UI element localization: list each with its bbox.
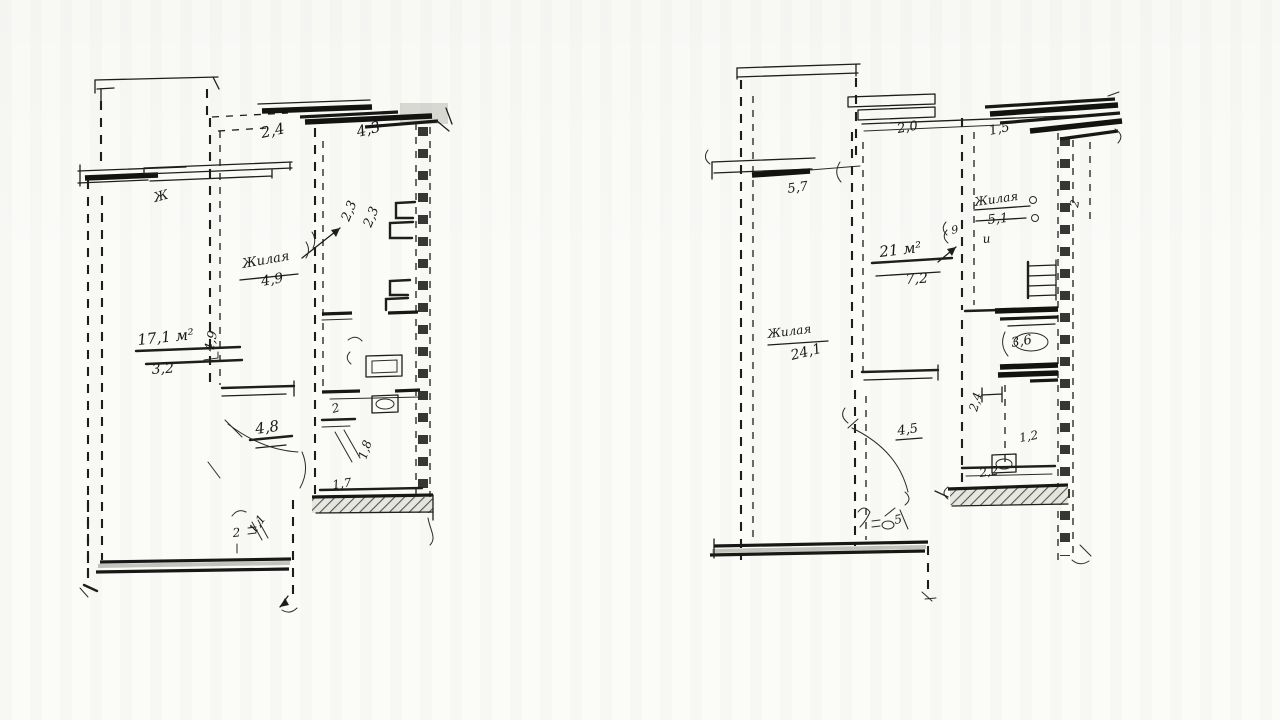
plan-label: 1,8 <box>356 438 375 461</box>
left-bottom-balcony <box>80 500 297 612</box>
left-top-balcony <box>95 77 288 163</box>
plan-label: 2,2 <box>977 463 999 480</box>
plan-label: Жилая <box>766 322 812 341</box>
left-floor-plan: 2,44,32,32,3Жилая4,94,917,1 м²3,24,821,8… <box>78 77 452 612</box>
plan-label: 1,7 <box>331 475 352 492</box>
plan-label: 21 м² <box>877 238 922 261</box>
right-window-assembly <box>705 150 860 182</box>
floor-plan-sketch: 2,44,32,32,3Жилая4,94,917,1 м²3,24,821,8… <box>0 0 1280 720</box>
plan-label: 7,2 <box>905 270 928 288</box>
right-floor-plan: 2,01,55,7Жилая5,1и9221 м²7,2Жилая24,14,5… <box>705 64 1122 601</box>
plan-label: 4,9 <box>202 329 221 353</box>
right-top-window-stack <box>848 92 1122 143</box>
plan-label: Ж <box>151 187 170 206</box>
plan-label: 2,4 <box>258 119 286 142</box>
plan-label: 9 <box>950 223 959 237</box>
right-interior-walls <box>852 118 1055 546</box>
plan-label: 24,1 <box>788 341 823 364</box>
left-fixtures <box>347 202 415 413</box>
plan-label: 5,1 <box>987 211 1009 228</box>
plan-label: 2,3 <box>338 199 360 225</box>
radiator-niche <box>390 280 410 295</box>
plan-label: 3,6 <box>1010 333 1033 351</box>
plan-label: 3,2 <box>151 360 174 378</box>
plan-label: 17,1 м² <box>137 325 195 349</box>
plan-label: 4,9 <box>259 270 285 290</box>
plan-label: 2 <box>231 525 241 540</box>
plan-label: 1,5 <box>988 120 1011 139</box>
plan-label: 2 <box>329 400 341 416</box>
left-plan-labels: 2,44,32,32,3Жилая4,94,917,1 м²3,24,821,8… <box>137 118 383 540</box>
left-interior-walls <box>222 128 422 498</box>
left-hatched-strip <box>312 495 433 545</box>
bathtub-drawing <box>1003 332 1008 356</box>
plan-label: 2,3 <box>360 205 382 231</box>
plan-label: Жилая <box>972 189 1019 209</box>
plan-label: и <box>982 231 991 246</box>
plan-label: 2,4 <box>966 391 985 414</box>
plan-label: 2,0 <box>895 119 919 138</box>
fraction-bar <box>136 347 240 351</box>
plan-label: Жилая <box>240 249 290 272</box>
balcony-floor-hatch <box>312 497 433 513</box>
right-bottom-wall <box>710 539 936 601</box>
right-top-balcony <box>737 64 860 560</box>
plan-label: 4,8 <box>253 417 280 438</box>
right-hatched-strip <box>935 485 1068 506</box>
plan-label: 4,5 <box>895 421 919 439</box>
plan-label: 5,7 <box>786 179 809 197</box>
left-window-assembly <box>78 162 292 186</box>
scanned-page: 2,44,32,32,3Жилая4,94,917,1 м²3,24,821,8… <box>0 0 1280 720</box>
radiator-niche <box>396 202 415 218</box>
plan-label: 1,2 <box>1018 428 1039 445</box>
